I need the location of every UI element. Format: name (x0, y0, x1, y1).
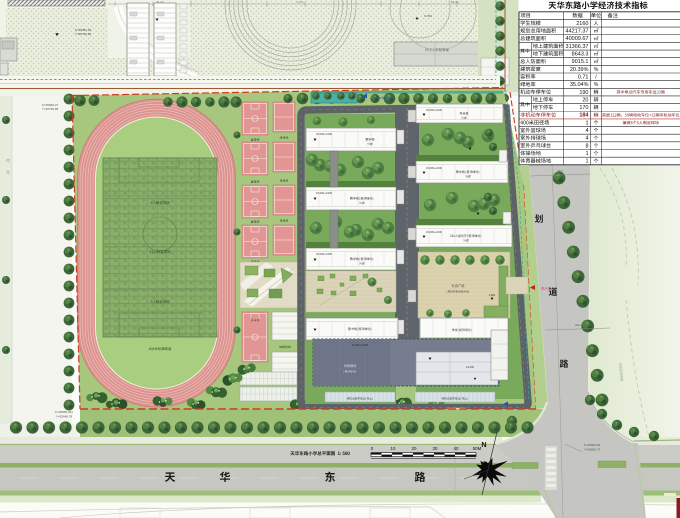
svg-text:30.2m: 30.2m (451, 0, 460, 4)
svg-text:35.04%: 35.04% (570, 82, 589, 88)
svg-text:3.0m: 3.0m (297, 0, 304, 4)
svg-text:1: 1 (585, 159, 588, 165)
svg-text:190: 190 (579, 90, 588, 96)
svg-text:40009.67: 40009.67 (566, 36, 589, 42)
svg-text:0.71: 0.71 (578, 74, 589, 80)
svg-text:Y=25806.73: Y=25806.73 (584, 448, 601, 452)
svg-text:4: 4 (585, 128, 588, 134)
svg-text:10: 10 (391, 446, 396, 451)
svg-text:1.800: 1.800 (489, 293, 496, 297)
svg-text:1: 1 (585, 151, 588, 157)
svg-text:K=25869.48: K=25869.48 (584, 443, 601, 447)
svg-text:170: 170 (579, 105, 588, 111)
svg-text:6.700: 6.700 (424, 14, 432, 18)
svg-text:24m: 24m (557, 169, 563, 173)
svg-text:1: 1 (585, 120, 588, 126)
svg-text:20: 20 (582, 97, 588, 103)
svg-text:44217.37: 44217.37 (566, 29, 589, 35)
svg-text:±0.000+4.000: ±0.000+4.000 (316, 252, 332, 256)
svg-text:24m: 24m (575, 323, 581, 327)
svg-text:Y=25790.86: Y=25790.86 (75, 32, 92, 36)
svg-text:±0.000+4.000: ±0.000+4.000 (316, 132, 332, 136)
svg-text:%: % (594, 82, 599, 88)
svg-text:20.39%: 20.39% (570, 67, 589, 73)
svg-text:9015.1: 9015.1 (572, 59, 589, 65)
svg-text:Y=25648.78: Y=25648.78 (56, 415, 73, 419)
svg-text:8: 8 (585, 143, 588, 149)
svg-text:±0.000+4.000: ±0.000+4.000 (426, 108, 442, 112)
svg-text:2160: 2160 (576, 21, 588, 27)
svg-text:K=25850.061: K=25850.061 (55, 410, 73, 414)
svg-text:11.052 +0.000: 11.052 +0.000 (352, 344, 368, 347)
svg-text:20: 20 (412, 446, 417, 451)
svg-text:±0.000+4.000: ±0.000+4.000 (426, 230, 442, 234)
svg-text:30: 30 (433, 446, 438, 451)
svg-text:184: 184 (579, 113, 589, 119)
svg-text:50M: 50M (473, 446, 482, 451)
svg-text:8643.3: 8643.3 (572, 52, 589, 58)
svg-text:12.000: 12.000 (466, 365, 474, 369)
svg-text:4: 4 (585, 136, 588, 142)
svg-text:±0.000+4.000: ±0.000+4.000 (316, 191, 332, 195)
svg-text:31366.37: 31366.37 (566, 44, 589, 50)
svg-text:Y=25795.98: Y=25795.98 (42, 107, 59, 111)
svg-text:N: N (481, 440, 486, 449)
svg-text:±0.000+4.000: ±0.000+4.000 (426, 166, 442, 170)
svg-text:%: % (594, 67, 599, 73)
svg-text:40: 40 (454, 446, 459, 451)
